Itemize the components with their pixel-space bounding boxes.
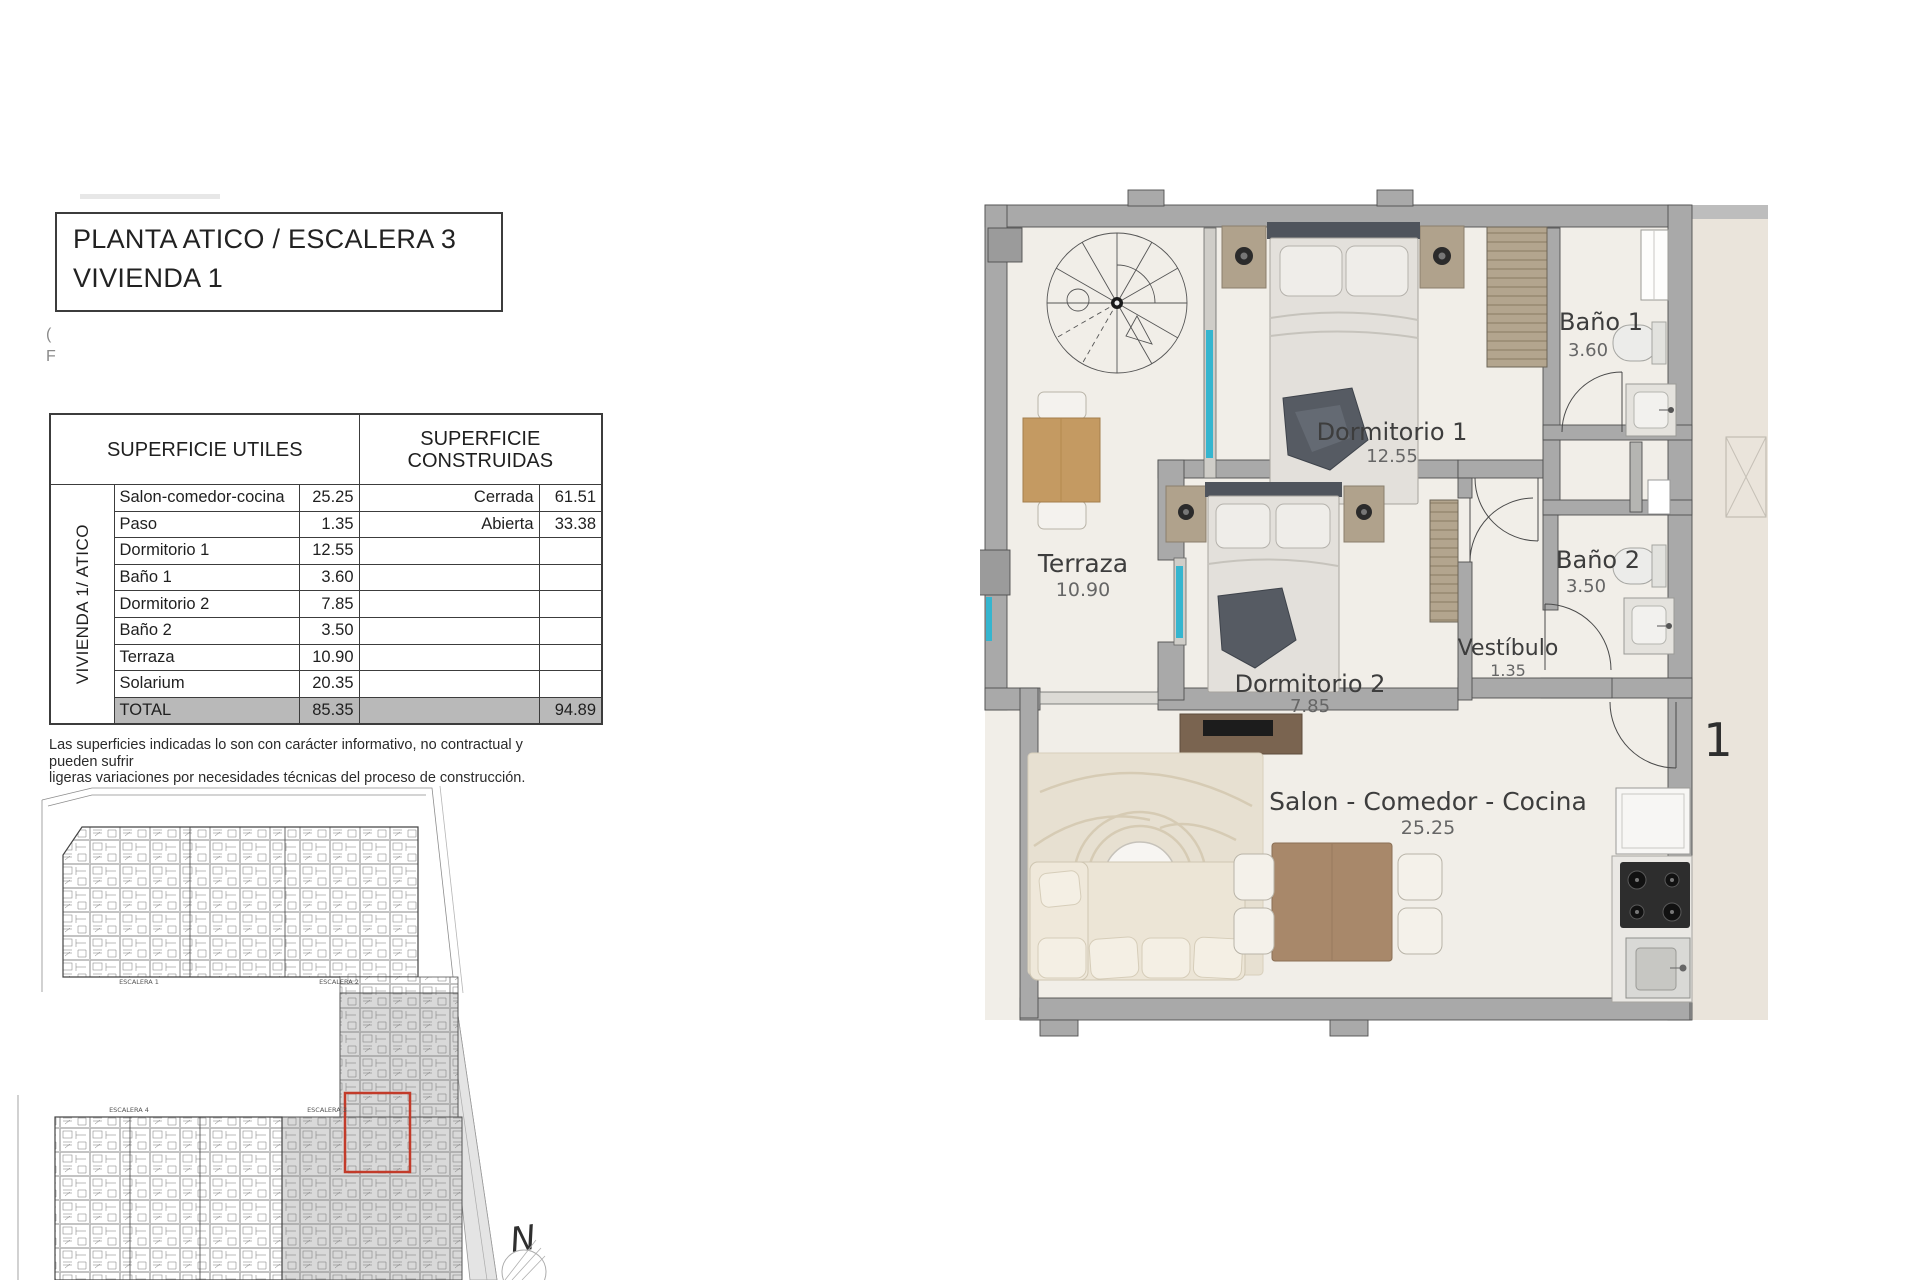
- header-superficie-utiles: SUPERFICIE UTILES: [50, 414, 359, 485]
- room-name: Baño 1: [114, 564, 299, 591]
- label-escalera-4: ESCALERA 4: [109, 1106, 149, 1114]
- table-row: Terraza 10.90: [50, 644, 602, 671]
- building-gray-upper: [340, 993, 458, 1117]
- stove: [1620, 862, 1690, 928]
- table-row: Solarium 20.35: [50, 671, 602, 698]
- room-area-terraza: 10.90: [1056, 579, 1110, 601]
- areas-table: SUPERFICIE UTILES SUPERFICIE CONSTRUIDAS…: [49, 413, 603, 725]
- solarium-strip: [1692, 205, 1768, 1020]
- room-name: Baño 2: [114, 617, 299, 644]
- room-value: 12.55: [299, 538, 359, 565]
- constructed-value: [539, 564, 602, 591]
- room-value: 20.35: [299, 671, 359, 698]
- table-row: VIVIENDA 1/ ATICO Salon-comedor-cocina 2…: [50, 485, 602, 512]
- table-row: Dormitorio 1 12.55: [50, 538, 602, 565]
- header-construidas-line2: CONSTRUIDAS: [361, 450, 601, 472]
- room-name: Terraza: [114, 644, 299, 671]
- constructed-value: [539, 617, 602, 644]
- constructed-label: [359, 617, 539, 644]
- total-value: 85.35: [299, 697, 359, 724]
- room-value: 1.35: [299, 511, 359, 538]
- window-glass: [1206, 330, 1213, 458]
- header-superficie-construidas: SUPERFICIE CONSTRUIDAS: [359, 414, 602, 485]
- room-label-bano1: Baño 1: [1559, 308, 1643, 336]
- window-glass: [1176, 566, 1183, 638]
- side-label-cell: VIVIENDA 1/ ATICO: [50, 485, 114, 725]
- print-smudge: [80, 194, 220, 199]
- constructed-value: 61.51: [539, 485, 602, 512]
- table-row: Paso 1.35 Abierta 33.38: [50, 511, 602, 538]
- constructed-label: [359, 644, 539, 671]
- constructed-label: [359, 538, 539, 565]
- constructed-value: 33.38: [539, 511, 602, 538]
- total-label: TOTAL: [114, 697, 299, 724]
- room-area-dorm1: 12.55: [1366, 446, 1418, 467]
- table-total-row: TOTAL 85.35 94.89: [50, 697, 602, 724]
- total-filler: [359, 697, 539, 724]
- building-wing-south: [55, 1117, 282, 1280]
- room-label-terraza: Terraza: [1037, 549, 1128, 578]
- fridge: [1616, 788, 1690, 854]
- room-area-dorm2: 7.85: [1290, 696, 1330, 717]
- table-header-row: SUPERFICIE UTILES SUPERFICIE CONSTRUIDAS: [50, 414, 602, 485]
- building-gray-lower: [282, 1117, 462, 1280]
- label-escalera-3: ESCALERA 3: [307, 1106, 347, 1114]
- bed-headboard: [1205, 482, 1342, 497]
- room-label-vestibulo: Vestíbulo: [1458, 636, 1559, 661]
- room-name: Paso: [114, 511, 299, 538]
- constructed-value: [539, 538, 602, 565]
- wardrobe: [1487, 227, 1547, 367]
- room-value: 25.25: [299, 485, 359, 512]
- constructed-value: [539, 591, 602, 618]
- room-name: Solarium: [114, 671, 299, 698]
- title-block: PLANTA ATICO / ESCALERA 3 VIVIENDA 1: [55, 212, 503, 312]
- site-plan: ESCALERA 1 ESCALERA 2 ESCALERA 4 ESCALER…: [15, 782, 675, 1280]
- total-constructed-value: 94.89: [539, 697, 602, 724]
- room-label-dorm1: Dormitorio 1: [1317, 418, 1468, 446]
- title-line-1: PLANTA ATICO / ESCALERA 3: [73, 220, 501, 259]
- constructed-label: [359, 564, 539, 591]
- margin-mark: F: [46, 348, 56, 366]
- table-row: Baño 2 3.50: [50, 617, 602, 644]
- label-escalera-1: ESCALERA 1: [119, 978, 159, 986]
- bed-headboard: [1267, 222, 1420, 239]
- room-value: 3.50: [299, 617, 359, 644]
- constructed-value: [539, 671, 602, 698]
- constructed-label: [359, 671, 539, 698]
- label-escalera-2: ESCALERA 2: [319, 978, 359, 986]
- constructed-label: [359, 591, 539, 618]
- room-value: 10.90: [299, 644, 359, 671]
- north-arrow: N: [502, 1218, 546, 1280]
- disclaimer: Las superficies indicadas lo son con car…: [49, 737, 574, 787]
- room-label-dorm2: Dormitorio 2: [1235, 670, 1386, 698]
- constructed-value: [539, 644, 602, 671]
- floor-plan: Terraza 10.90 Dormitorio 1 12.55 Baño 1 …: [980, 188, 1772, 1040]
- room-area-vestibulo: 1.35: [1490, 661, 1526, 680]
- plan-sheet: ( F PLANTA ATICO / ESCALERA 3 VIVIENDA 1…: [0, 0, 1920, 1280]
- disclaimer-line-1: Las superficies indicadas lo son con car…: [49, 737, 574, 770]
- header-construidas-line1: SUPERFICIE: [361, 428, 601, 450]
- room-area-bano1: 3.60: [1568, 340, 1608, 361]
- table-row: Baño 1 3.60: [50, 564, 602, 591]
- room-name: Dormitorio 2: [114, 591, 299, 618]
- building-wing-north: [63, 827, 418, 977]
- title-line-2: VIVIENDA 1: [73, 259, 501, 298]
- margin-mark: (: [46, 326, 51, 344]
- room-area-bano2: 3.50: [1566, 576, 1606, 597]
- room-area-salon: 25.25: [1401, 817, 1455, 839]
- constructed-label: Abierta: [359, 511, 539, 538]
- room-value: 7.85: [299, 591, 359, 618]
- unit-number: 1: [1703, 713, 1732, 767]
- side-label: VIVIENDA 1/ ATICO: [74, 524, 91, 684]
- room-label-bano2: Baño 2: [1556, 546, 1640, 574]
- room-value: 3.60: [299, 564, 359, 591]
- wardrobe: [1430, 500, 1458, 622]
- table-row: Dormitorio 2 7.85: [50, 591, 602, 618]
- tv: [1203, 720, 1273, 736]
- north-letter: N: [508, 1218, 539, 1261]
- window-glass: [986, 597, 992, 641]
- constructed-label: Cerrada: [359, 485, 539, 512]
- site-labels: ESCALERA 1 ESCALERA 2 ESCALERA 4 ESCALER…: [109, 978, 359, 1114]
- room-label-salon: Salon - Comedor - Cocina: [1269, 787, 1587, 816]
- room-name: Salon-comedor-cocina: [114, 485, 299, 512]
- room-name: Dormitorio 1: [114, 538, 299, 565]
